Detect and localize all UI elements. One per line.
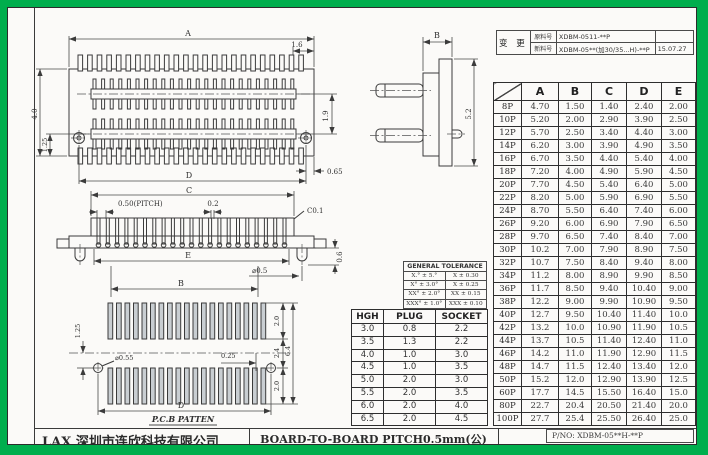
dim-value-cell: 4.40 (627, 127, 662, 140)
drawing-sheet: A 1.6 1.9 4.0 1.25 D 0.65 B 5. (7, 7, 697, 445)
dim-value-cell: 2.50 (662, 114, 696, 127)
dim-value-cell: 9.50 (662, 296, 696, 309)
dim-value-cell: 8.50 (559, 283, 592, 296)
dim-label-d: D (186, 171, 192, 180)
dim-table-row: 32P10.77.508.409.408.00 (494, 257, 696, 270)
dim-value-cell: 2.00 (662, 101, 696, 114)
chamfer-label: C0.1 (307, 207, 324, 215)
pin-count-cell: 38P (494, 296, 522, 309)
dim-value-cell: 12.5 (662, 374, 696, 387)
col-header-hgh: HGH (352, 310, 384, 324)
dim-table-row: 16P6.703.504.405.404.00 (494, 153, 696, 166)
dim-table-row: 38P12.29.009.9010.909.50 (494, 296, 696, 309)
old-pn-label: 原料号 (530, 31, 556, 43)
old-pn-date (655, 31, 693, 43)
dim-value-cell: 15.50 (592, 387, 627, 400)
tolerance-linear-cell: X ± 0.30 (445, 272, 487, 281)
dim-table-row: 26P9.206.006.907.906.50 (494, 218, 696, 231)
dim-value-cell: 10.5 (559, 335, 592, 348)
col-header-c: C (592, 83, 627, 101)
plug-cell: 2.0 (384, 400, 436, 413)
hgh-cell: 6.0 (352, 400, 384, 413)
pin-count-cell: 80P (494, 400, 522, 413)
dim-value-cell: 9.20 (522, 218, 559, 231)
hgh-cell: 3.5 (352, 336, 384, 349)
dim-table-row: 10P5.202.002.903.902.50 (494, 114, 696, 127)
front-view-drawing: C 0.50(PITCH) 0.2 C0.1 E ⌀0.5 0.6 B (31, 186, 396, 301)
dimension-table-header: A B C D E (494, 83, 696, 101)
dim-value-cell: 4.90 (627, 140, 662, 153)
dim-value-cell: 5.90 (627, 166, 662, 179)
new-pn-label: 新料号 (530, 43, 556, 55)
dim-value-cell: 7.20 (522, 166, 559, 179)
dim-value-cell: 10.40 (627, 283, 662, 296)
dim-value-cell: 5.00 (662, 179, 696, 192)
tolerance-title: GENERAL TOLERANCE (404, 262, 487, 272)
pitch-label: 0.50(PITCH) (118, 200, 163, 208)
dim-value-cell: 4.00 (662, 153, 696, 166)
dim-value-cell: 14.2 (522, 348, 559, 361)
part-number: P/NO: XDBM-05**H-**P (546, 429, 694, 443)
dim-label-dia-0-55: ⌀0.55 (115, 354, 133, 362)
dim-value-cell: 5.40 (592, 179, 627, 192)
col-header-d: D (627, 83, 662, 101)
tolerance-row: XX° ± 2.0°XX ± 0.15 (404, 290, 487, 299)
dim-label-6-4: 6.4 (284, 346, 292, 356)
dim-table-row: 48P14.711.512.4013.4012.0 (494, 361, 696, 374)
pin-count-cell: 100P (494, 413, 522, 426)
pin-count-cell: 30P (494, 244, 522, 257)
height-table-row: 4.01.03.0 (352, 349, 488, 362)
dim-table-row: 100P27.725.425.5026.4025.0 (494, 413, 696, 426)
socket-cell: 3.0 (436, 375, 488, 388)
dim-table-row: 20P7.704.505.406.405.00 (494, 179, 696, 192)
dim-table-row: 34P11.28.008.909.908.50 (494, 270, 696, 283)
dim-value-cell: 5.90 (592, 192, 627, 205)
pcb-pattern-drawing: ⌀0.55 1.25 2.0 2.4 2.0 6.4 0.25 D P.C.B … (31, 291, 396, 436)
dim-value-cell: 2.90 (592, 114, 627, 127)
dim-value-cell: 8.40 (627, 231, 662, 244)
dim-value-cell: 4.90 (592, 166, 627, 179)
height-table-header: HGH PLUG SOCKET (352, 310, 488, 324)
dim-value-cell: 12.90 (592, 374, 627, 387)
dim-value-cell: 7.40 (627, 205, 662, 218)
side-view-dimensions (423, 37, 478, 166)
height-table-row: 5.52.03.5 (352, 387, 488, 400)
dim-value-cell: 27.7 (522, 413, 559, 426)
tolerance-angle-cell: X.° ± 5.° (404, 272, 446, 281)
dim-table-row: 36P11.78.509.4010.409.00 (494, 283, 696, 296)
dim-value-cell: 3.40 (592, 127, 627, 140)
top-view-drawing: A 1.6 1.9 4.0 1.25 D 0.65 (31, 26, 393, 189)
pin-count-cell: 10P (494, 114, 522, 127)
pin-count-cell: 18P (494, 166, 522, 179)
company-name: LAX 深圳市连欣科技有限公司 (42, 431, 254, 445)
dim-value-cell: 26.40 (627, 413, 662, 426)
pin-count-cell: 32P (494, 257, 522, 270)
dim-table-row: 80P22.720.420.5021.4020.0 (494, 400, 696, 413)
diagonal-header-cell (494, 83, 522, 101)
pcb-pattern-caption: P.C.B PATTEN (151, 414, 215, 424)
dim-value-cell: 5.70 (522, 127, 559, 140)
height-table-row: 3.51.32.2 (352, 336, 488, 349)
top-view-geometry (69, 55, 314, 164)
dim-value-cell: 13.2 (522, 322, 559, 335)
dim-label-1-6: 1.6 (291, 41, 303, 49)
dim-value-cell: 6.50 (662, 218, 696, 231)
dim-value-cell: 9.00 (662, 283, 696, 296)
col-header-plug: PLUG (384, 310, 436, 324)
dim-table-row: 42P13.210.010.9011.9010.5 (494, 322, 696, 335)
dim-value-cell: 12.2 (522, 296, 559, 309)
dim-label-0-65: 0.65 (327, 168, 343, 176)
dim-value-cell: 25.0 (662, 413, 696, 426)
dim-value-cell: 8.90 (627, 244, 662, 257)
dim-value-cell: 11.90 (592, 348, 627, 361)
tolerance-row: XXX° ± 1.0°XXX ± 0.10 (404, 299, 487, 308)
dim-value-cell: 6.70 (522, 153, 559, 166)
dim-value-cell: 5.20 (522, 114, 559, 127)
col-header-socket: SOCKET (436, 310, 488, 324)
dim-value-cell: 22.7 (522, 400, 559, 413)
dim-value-cell: 10.0 (559, 322, 592, 335)
dim-value-cell: 12.40 (592, 361, 627, 374)
hgh-cell: 3.0 (352, 324, 384, 337)
dim-value-cell: 9.40 (592, 283, 627, 296)
tolerance-row: X.° ± 5.°X ± 0.30 (404, 272, 487, 281)
dim-table-row: 12P5.702.503.404.403.00 (494, 127, 696, 140)
pin-count-cell: 26P (494, 218, 522, 231)
pin-count-cell: 44P (494, 335, 522, 348)
pin-count-cell: 60P (494, 387, 522, 400)
dim-value-cell: 11.5 (559, 361, 592, 374)
dim-value-cell: 9.00 (559, 296, 592, 309)
dim-label-2-4: 2.4 (273, 348, 281, 358)
dim-label-4-0: 4.0 (31, 108, 39, 119)
dim-value-cell: 20.50 (592, 400, 627, 413)
dim-value-cell: 5.40 (627, 153, 662, 166)
dim-value-cell: 6.50 (559, 231, 592, 244)
dim-value-cell: 10.2 (522, 244, 559, 257)
dim-value-cell: 6.90 (627, 192, 662, 205)
dim-value-cell: 11.7 (522, 283, 559, 296)
dim-value-cell: 4.70 (522, 101, 559, 114)
dim-value-cell: 3.90 (627, 114, 662, 127)
hgh-cell: 5.5 (352, 387, 384, 400)
socket-cell: 3.5 (436, 387, 488, 400)
pin-count-cell: 48P (494, 361, 522, 374)
dim-value-cell: 15.0 (662, 387, 696, 400)
socket-cell: 3.5 (436, 362, 488, 375)
dim-value-cell: 10.5 (662, 322, 696, 335)
dim-value-cell: 13.7 (522, 335, 559, 348)
change-log-row: 变 更 原料号 XDBM-0511-**P (497, 31, 694, 43)
tolerance-linear-cell: XX ± 0.15 (445, 290, 487, 299)
side-view-drawing: B 5.2 (361, 26, 496, 189)
pin-count-cell: 46P (494, 348, 522, 361)
dim-value-cell: 9.70 (522, 231, 559, 244)
socket-cell: 4.5 (436, 413, 488, 426)
socket-cell: 2.2 (436, 324, 488, 337)
dim-value-cell: 7.50 (662, 244, 696, 257)
dim-value-cell: 25.4 (559, 413, 592, 426)
dim-value-cell: 4.50 (559, 179, 592, 192)
height-table-row: 6.02.04.0 (352, 400, 488, 413)
tolerance-linear-cell: XXX ± 0.10 (445, 299, 487, 308)
dim-value-cell: 7.70 (522, 179, 559, 192)
dim-label-d2: D (178, 401, 184, 410)
tolerance-table: GENERAL TOLERANCE X.° ± 5.°X ± 0.30X° ± … (403, 261, 487, 309)
pcb-geometry (69, 303, 293, 404)
dim-label-2-0-top: 2.0 (273, 316, 281, 326)
dim-value-cell: 7.90 (627, 218, 662, 231)
dim-value-cell: 5.50 (559, 205, 592, 218)
height-table-row: 3.00.82.2 (352, 324, 488, 337)
tolerance-linear-cell: X ± 0.25 (445, 281, 487, 290)
dim-value-cell: 4.40 (592, 153, 627, 166)
socket-cell: 4.0 (436, 400, 488, 413)
dim-value-cell: 20.4 (559, 400, 592, 413)
dim-value-cell: 7.00 (662, 231, 696, 244)
pin-count-cell: 12P (494, 127, 522, 140)
dim-value-cell: 2.40 (627, 101, 662, 114)
dim-value-cell: 8.50 (662, 270, 696, 283)
dim-value-cell: 9.40 (627, 257, 662, 270)
dim-label-1-25b: 1.25 (74, 324, 82, 338)
dim-label-c: C (186, 186, 192, 195)
dim-label-dia-0-5: ⌀0.5 (252, 267, 267, 275)
dim-label-0-25: 0.25 (221, 352, 235, 360)
dim-value-cell: 8.00 (662, 257, 696, 270)
dim-value-cell: 7.90 (592, 244, 627, 257)
plug-cell: 1.0 (384, 362, 436, 375)
plug-cell: 2.0 (384, 375, 436, 388)
dim-value-cell: 4.00 (559, 166, 592, 179)
hgh-cell: 4.0 (352, 349, 384, 362)
dim-value-cell: 13.40 (627, 361, 662, 374)
dim-value-cell: 8.20 (522, 192, 559, 205)
dim-value-cell: 11.0 (662, 335, 696, 348)
pin-count-cell: 28P (494, 231, 522, 244)
height-table: HGH PLUG SOCKET 3.00.82.23.51.32.24.01.0… (351, 309, 488, 426)
dim-value-cell: 12.0 (559, 374, 592, 387)
dim-value-cell: 8.40 (592, 257, 627, 270)
tolerance-angle-cell: XX° ± 2.0° (404, 290, 446, 299)
height-table-row: 5.02.03.0 (352, 375, 488, 388)
dim-table-row: 60P17.714.515.5016.4015.0 (494, 387, 696, 400)
dim-value-cell: 10.90 (627, 296, 662, 309)
col-header-a: A (522, 83, 559, 101)
dim-label-0-6: 0.6 (336, 251, 344, 263)
pin-count-cell: 20P (494, 179, 522, 192)
dim-value-cell: 9.50 (559, 309, 592, 322)
dim-table-row: 30P10.27.007.908.907.50 (494, 244, 696, 257)
dim-value-cell: 20.0 (662, 400, 696, 413)
dim-value-cell: 12.0 (662, 361, 696, 374)
col-header-b: B (559, 83, 592, 101)
dim-table-row: 22P8.205.005.906.905.50 (494, 192, 696, 205)
dim-value-cell: 6.20 (522, 140, 559, 153)
dim-value-cell: 9.90 (592, 296, 627, 309)
dim-value-cell: 14.7 (522, 361, 559, 374)
new-pn-date: 15.07.27 (655, 43, 693, 55)
dim-value-cell: 11.2 (522, 270, 559, 283)
dim-value-cell: 13.90 (627, 374, 662, 387)
height-table-row: 6.52.04.5 (352, 413, 488, 426)
pin-count-cell: 22P (494, 192, 522, 205)
pin-count-cell: 14P (494, 140, 522, 153)
pin-count-cell: 36P (494, 283, 522, 296)
plug-cell: 1.3 (384, 336, 436, 349)
dim-value-cell: 11.90 (627, 322, 662, 335)
tolerance-angle-cell: XXX° ± 1.0° (404, 299, 446, 308)
dim-value-cell: 10.7 (522, 257, 559, 270)
dim-table-row: 18P7.204.004.905.904.50 (494, 166, 696, 179)
dim-label-0-2: 0.2 (207, 200, 218, 208)
dim-value-cell: 3.50 (559, 153, 592, 166)
pin-count-cell: 42P (494, 322, 522, 335)
dim-value-cell: 3.00 (662, 127, 696, 140)
socket-cell: 2.2 (436, 336, 488, 349)
dim-table-row: 24P8.705.506.407.406.00 (494, 205, 696, 218)
plug-cell: 2.0 (384, 413, 436, 426)
dim-value-cell: 15.2 (522, 374, 559, 387)
plug-cell: 2.0 (384, 387, 436, 400)
dim-label-b2: B (178, 279, 184, 288)
pin-count-cell: 50P (494, 374, 522, 387)
dim-table-row: 14P6.203.003.904.903.50 (494, 140, 696, 153)
dim-value-cell: 2.00 (559, 114, 592, 127)
pin-count-cell: 16P (494, 153, 522, 166)
pin-count-cell: 40P (494, 309, 522, 322)
tolerance-angle-cell: X° ± 3.0° (404, 281, 446, 290)
col-header-e: E (662, 83, 696, 101)
dim-value-cell: 1.50 (559, 101, 592, 114)
tolerance-row: X° ± 3.0°X ± 0.25 (404, 281, 487, 290)
dim-value-cell: 8.90 (592, 270, 627, 283)
dim-table-row: 40P12.79.5010.4011.4010.0 (494, 309, 696, 322)
dim-value-cell: 7.40 (592, 231, 627, 244)
dim-value-cell: 2.50 (559, 127, 592, 140)
dim-value-cell: 3.50 (662, 140, 696, 153)
dim-value-cell: 6.40 (592, 205, 627, 218)
dimension-table: A B C D E 8P4.701.501.402.402.0010P5.202… (493, 82, 696, 426)
dim-table-row: 44P13.710.511.4012.4011.0 (494, 335, 696, 348)
dim-value-cell: 6.40 (627, 179, 662, 192)
side-view-geometry (370, 59, 465, 166)
pin-count-cell: 34P (494, 270, 522, 283)
new-pn-value: XDBM-05**(加30/35...H)-**P (556, 43, 655, 55)
dim-label-2-0-bot: 2.0 (273, 381, 281, 391)
dim-table-row: 46P14.211.011.9012.9011.5 (494, 348, 696, 361)
dim-value-cell: 4.50 (662, 166, 696, 179)
pin-count-cell: 8P (494, 101, 522, 114)
dim-value-cell: 11.5 (662, 348, 696, 361)
drawing-title: BOARD-TO-BOARD PITCH0.5mm(公) (249, 431, 498, 445)
plug-cell: 1.0 (384, 349, 436, 362)
dim-value-cell: 7.00 (559, 244, 592, 257)
change-label-cell: 变 更 (497, 31, 531, 55)
dim-value-cell: 11.40 (627, 309, 662, 322)
dim-value-cell: 7.50 (559, 257, 592, 270)
dim-value-cell: 25.50 (592, 413, 627, 426)
hgh-cell: 4.5 (352, 362, 384, 375)
dim-value-cell: 6.90 (592, 218, 627, 231)
dim-table-row: 50P15.212.012.9013.9012.5 (494, 374, 696, 387)
dim-table-row: 28P9.706.507.408.407.00 (494, 231, 696, 244)
dim-table-row: 8P4.701.501.402.402.00 (494, 101, 696, 114)
scanned-drawing-page: A 1.6 1.9 4.0 1.25 D 0.65 B 5. (0, 0, 708, 455)
dim-value-cell: 8.00 (559, 270, 592, 283)
dim-value-cell: 8.70 (522, 205, 559, 218)
front-view-geometry (57, 211, 326, 265)
dim-value-cell: 3.00 (559, 140, 592, 153)
dim-label-b: B (434, 31, 440, 40)
dim-value-cell: 16.40 (627, 387, 662, 400)
old-pn-value: XDBM-0511-**P (556, 31, 655, 43)
height-table-row: 4.51.03.5 (352, 362, 488, 375)
dim-value-cell: 12.90 (627, 348, 662, 361)
hgh-cell: 5.0 (352, 375, 384, 388)
dim-value-cell: 17.7 (522, 387, 559, 400)
socket-cell: 3.0 (436, 349, 488, 362)
dim-label-a: A (184, 29, 191, 38)
dim-value-cell: 5.50 (662, 192, 696, 205)
title-block-divider-2 (498, 428, 499, 445)
dim-value-cell: 9.90 (627, 270, 662, 283)
dim-value-cell: 3.90 (592, 140, 627, 153)
hgh-cell: 6.5 (352, 413, 384, 426)
dim-value-cell: 10.40 (592, 309, 627, 322)
dim-label-1-25: 1.25 (41, 138, 49, 152)
dim-value-cell: 11.0 (559, 348, 592, 361)
dim-value-cell: 6.00 (559, 218, 592, 231)
dim-value-cell: 6.00 (662, 205, 696, 218)
dim-value-cell: 5.00 (559, 192, 592, 205)
dim-value-cell: 10.90 (592, 322, 627, 335)
dim-value-cell: 21.40 (627, 400, 662, 413)
dim-value-cell: 1.40 (592, 101, 627, 114)
dim-value-cell: 14.5 (559, 387, 592, 400)
dim-label-5-2: 5.2 (465, 108, 473, 119)
change-log-table: 变 更 原料号 XDBM-0511-**P 新料号 XDBM-05**(加30/… (496, 30, 694, 55)
plug-cell: 0.8 (384, 324, 436, 337)
dim-value-cell: 11.40 (592, 335, 627, 348)
dim-label-1-9: 1.9 (322, 110, 330, 121)
dim-label-e: E (185, 251, 191, 260)
dim-value-cell: 12.40 (627, 335, 662, 348)
dim-value-cell: 10.0 (662, 309, 696, 322)
dim-value-cell: 12.7 (522, 309, 559, 322)
pin-count-cell: 24P (494, 205, 522, 218)
